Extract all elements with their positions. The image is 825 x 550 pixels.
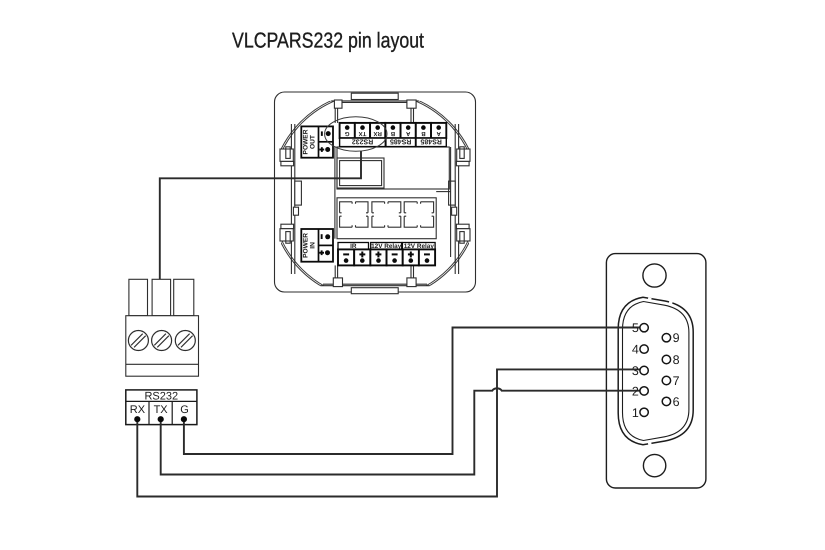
svg-text:TX: TX: [154, 404, 169, 416]
svg-text:A: A: [405, 130, 410, 137]
svg-text:RS232: RS232: [144, 391, 178, 403]
svg-text:POWER: POWER: [303, 129, 310, 154]
svg-text:2: 2: [632, 384, 639, 398]
svg-text:6: 6: [673, 395, 680, 409]
svg-text:8: 8: [673, 353, 680, 367]
svg-text:POWER: POWER: [303, 233, 310, 258]
svg-text:G: G: [345, 130, 350, 137]
svg-text:IN: IN: [310, 242, 317, 249]
svg-text:3: 3: [632, 364, 639, 378]
svg-text:RS485: RS485: [390, 138, 412, 145]
svg-text:VLCPARS232 pin layout: VLCPARS232 pin layout: [232, 29, 424, 53]
svg-text:RS485: RS485: [420, 138, 442, 145]
svg-text:RX: RX: [130, 404, 146, 416]
svg-text:OUT: OUT: [310, 135, 317, 149]
svg-text:4: 4: [632, 343, 639, 357]
svg-text:RX: RX: [374, 130, 382, 137]
svg-text:5: 5: [632, 321, 639, 335]
svg-text:1: 1: [632, 406, 639, 420]
svg-text:G: G: [180, 404, 189, 416]
svg-text:RS232: RS232: [352, 138, 374, 145]
svg-text:9: 9: [673, 331, 680, 345]
svg-text:TX: TX: [359, 130, 367, 137]
svg-text:B: B: [390, 130, 395, 137]
svg-text:7: 7: [673, 374, 680, 388]
svg-text:B: B: [421, 130, 426, 137]
svg-text:A: A: [436, 130, 441, 137]
